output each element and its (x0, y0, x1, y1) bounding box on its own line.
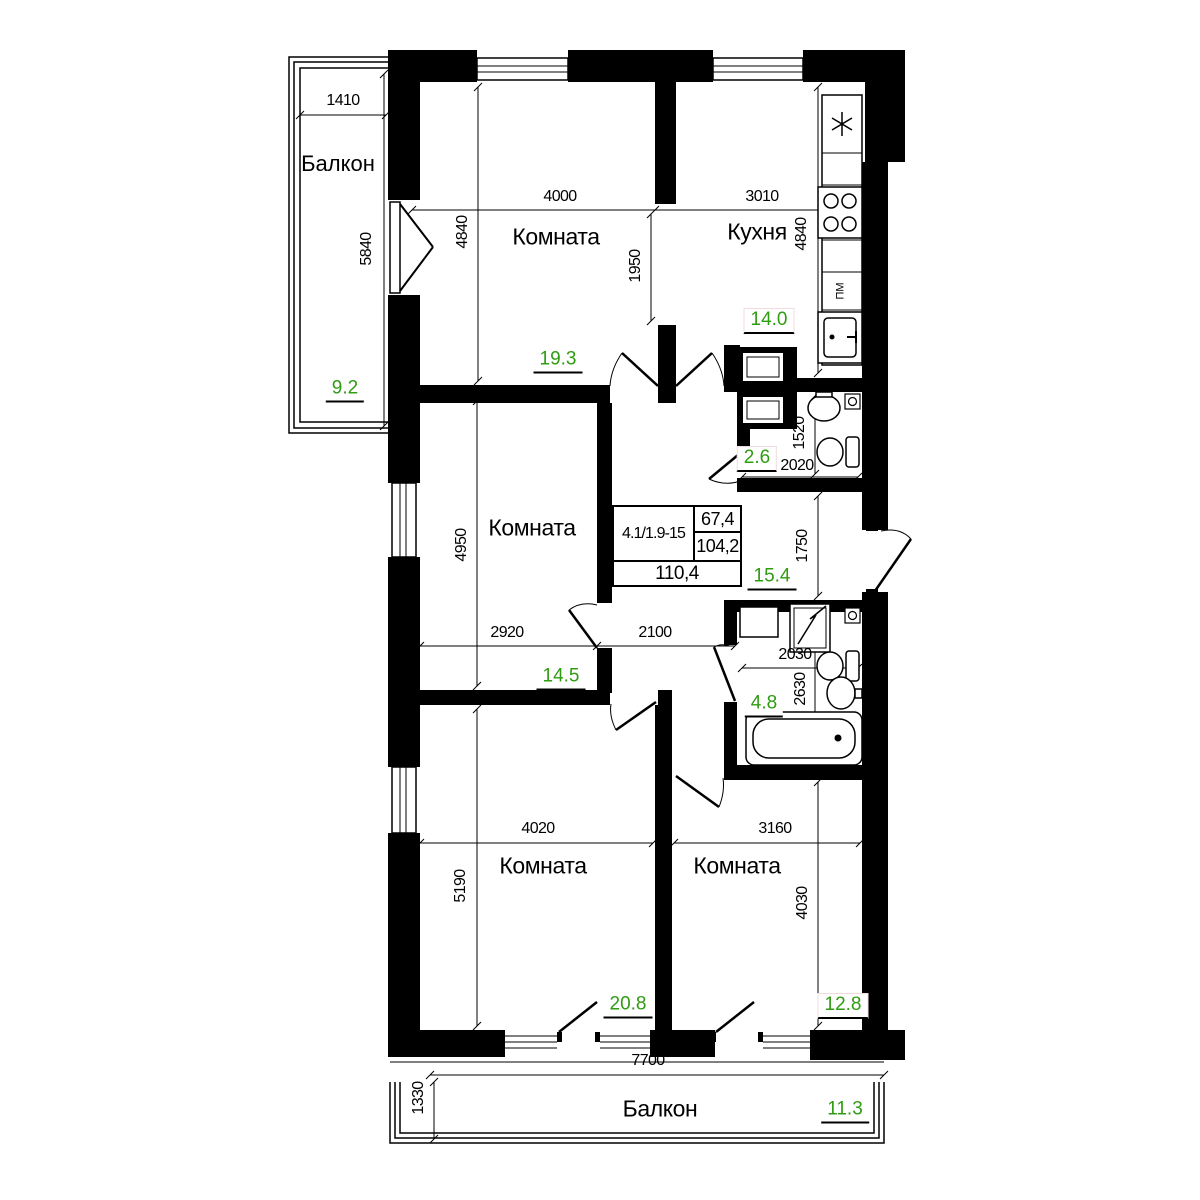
stove-icon (818, 187, 862, 238)
dishwasher-label: ПМ (836, 282, 847, 299)
room-label-bottom-right: Комната (693, 855, 780, 878)
apartment-total-area: 104,2 (695, 533, 740, 560)
room-label-top: Комната (512, 226, 599, 249)
window-top-2 (713, 58, 803, 80)
dim-hall-depth: 1750 (795, 529, 811, 562)
apartment-overall-area: 110,4 (614, 560, 740, 585)
room-label-bottom-left: Комната (499, 855, 586, 878)
area-value-bottom-left: 20.8 (604, 994, 653, 1019)
dim-balcony-top-width: 1410 (326, 93, 359, 109)
dim-room-top-opening: 1950 (628, 249, 644, 282)
window-left-2 (392, 767, 416, 833)
window-top-1 (477, 58, 568, 80)
bathtub-icon (746, 712, 862, 765)
balcony-door-top (390, 202, 433, 293)
room-label-kitchen: Кухня (727, 221, 787, 244)
wc-toilet-icon (817, 437, 859, 467)
dim-wc-depth: 1520 (792, 416, 808, 449)
bath-vent-icon (845, 608, 860, 623)
dim-bottom-left-width: 4020 (521, 821, 554, 837)
apartment-code: 4.1/1.9-15 (614, 507, 695, 560)
area-value-bathroom: 4.8 (745, 693, 783, 718)
dim-kitchen-depth: 4840 (794, 217, 810, 250)
floor-plan: Балкон Комната Кухня Комната Комната Ком… (0, 0, 1200, 1200)
room-label-balcony-bottom: Балкон (623, 1098, 698, 1121)
apartment-living-area: 67,4 (695, 507, 740, 533)
wc-vent-icon (845, 394, 860, 409)
area-value-wc: 2.6 (737, 446, 777, 472)
dim-bottom-right-width: 3160 (758, 821, 791, 837)
area-value-room-middle: 14.5 (537, 666, 586, 691)
dim-room-top-depth: 4840 (455, 215, 471, 248)
dim-bathroom-width: 2030 (778, 647, 811, 663)
area-value-room-top: 19.3 (534, 349, 583, 374)
wc-sink-icon (808, 392, 840, 421)
room-label-balcony-top: Балкон (301, 153, 375, 175)
dim-room-middle-width: 2920 (490, 625, 523, 641)
dim-balcony-top-depth: 5840 (359, 232, 375, 265)
area-value-bottom-right: 12.8 (818, 993, 869, 1019)
bath-sink-icon (827, 677, 862, 709)
dim-bathroom-depth: 2630 (793, 672, 809, 705)
dim-bottom-left-depth: 5190 (453, 869, 469, 902)
dim-room-top-width: 4000 (543, 189, 576, 205)
floor-plan-canvas (0, 0, 1200, 1200)
apartment-info-table: 4.1/1.9-15 67,4 104,2 110,4 (612, 505, 742, 587)
dim-bottom-right-depth: 4030 (795, 886, 811, 919)
dim-wc-width: 2020 (780, 458, 813, 474)
dim-kitchen-width: 3010 (745, 189, 778, 205)
area-value-balcony-bottom: 11.3 (821, 1099, 869, 1124)
washing-machine-icon (790, 604, 830, 652)
window-left-1 (392, 483, 416, 557)
area-value-hall: 15.4 (748, 566, 797, 591)
kitchen-sink-icon (818, 312, 862, 363)
dim-hall-width: 2100 (638, 625, 671, 641)
room-label-middle: Комната (488, 517, 575, 540)
dim-balcony-bottom-width: 7700 (631, 1053, 664, 1069)
fridge-icon (832, 112, 852, 136)
bath-toilet-icon (817, 651, 859, 681)
bath-cabinet-icon (740, 607, 778, 637)
area-value-kitchen: 14.0 (744, 308, 795, 334)
area-value-balcony-top: 9.2 (326, 378, 364, 403)
entry-door-leaf (875, 539, 911, 591)
dim-balcony-bottom-depth: 1330 (411, 1081, 427, 1114)
dim-room-middle-depth: 4950 (454, 528, 470, 561)
